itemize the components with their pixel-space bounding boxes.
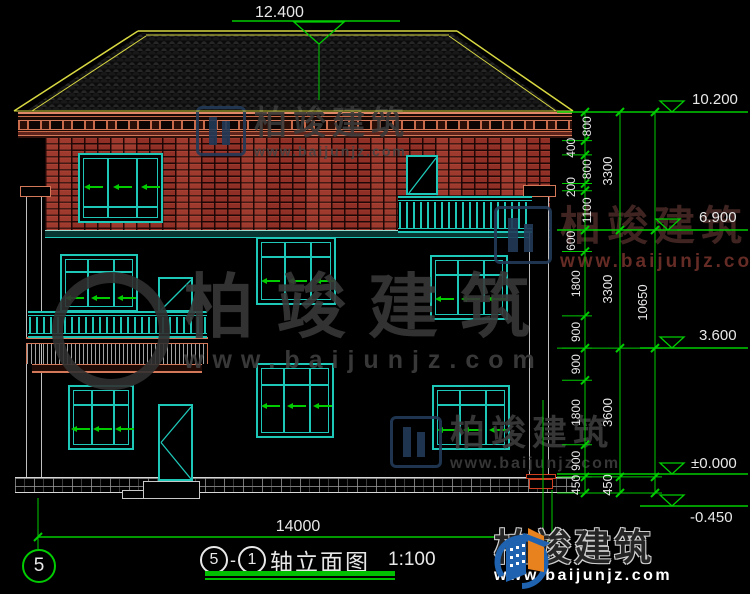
axis-bubble-5: 5: [22, 549, 56, 583]
title-dash: -: [230, 550, 236, 571]
dim-chain1-value: 600: [564, 230, 578, 250]
ridge-level-triangle: [294, 22, 344, 44]
ridge-elevation-text: 12.400: [255, 4, 304, 21]
roof-hip-right: [457, 31, 573, 111]
dim-chain1-value: 900: [569, 322, 583, 342]
bottom-dim-value: 14000: [276, 518, 321, 535]
dim-chain1-value: 1100: [580, 197, 594, 223]
elevation-triangle: [660, 463, 684, 474]
company-logo: 柏竣建筑 www.baijunjz.com: [488, 520, 750, 594]
title-underline-thick: [205, 571, 395, 576]
elevation-triangle: [656, 219, 680, 230]
title-underline-thin: [205, 578, 395, 580]
title-axis-bubble-start: 5: [200, 546, 228, 574]
dim-chain1-value: 900: [569, 354, 583, 374]
dim-chain2-value: 3600: [600, 398, 615, 427]
linework-overlay: 12.4008004008002001100600180090090018009…: [0, 0, 750, 594]
company-logo-icon: [488, 520, 552, 590]
elevation-value: ±0.000: [691, 455, 737, 472]
dim-chain2-value: 3300: [600, 275, 615, 304]
elevation-drawing: 12.4008004008002001100600180090090018009…: [0, 0, 750, 594]
dim-chain2-value: 450: [600, 474, 615, 496]
dim-chain1-value: 800: [580, 116, 594, 136]
elevation-triangle: [660, 101, 684, 112]
roof-hip-right-inner: [449, 36, 556, 111]
title-scale: 1:100: [388, 549, 436, 571]
dim-chain1-value: 900: [569, 450, 583, 470]
elevation-value: 6.900: [699, 209, 737, 226]
dim-chain1-value: 1800: [569, 270, 583, 297]
dim-chain1-value: 450: [569, 475, 583, 495]
elevation-triangle: [660, 495, 684, 506]
roof-hip-left-inner: [32, 36, 146, 111]
roof-hip-left: [14, 31, 138, 111]
elevation-value: 3.600: [699, 327, 737, 344]
elevation-value: 10.200: [692, 91, 738, 108]
dim-chain2-value: 3300: [600, 157, 615, 186]
title-axis-bubble-end: 1: [238, 546, 266, 574]
elevation-triangle: [660, 337, 684, 348]
dim-chain1-value: 400: [564, 137, 578, 157]
dim-chain1-value: 200: [564, 177, 578, 197]
dim-chain1-value: 800: [580, 159, 594, 179]
dim-chain1-value: 1800: [569, 399, 583, 426]
dim-chain3-value: 10650: [635, 284, 650, 320]
